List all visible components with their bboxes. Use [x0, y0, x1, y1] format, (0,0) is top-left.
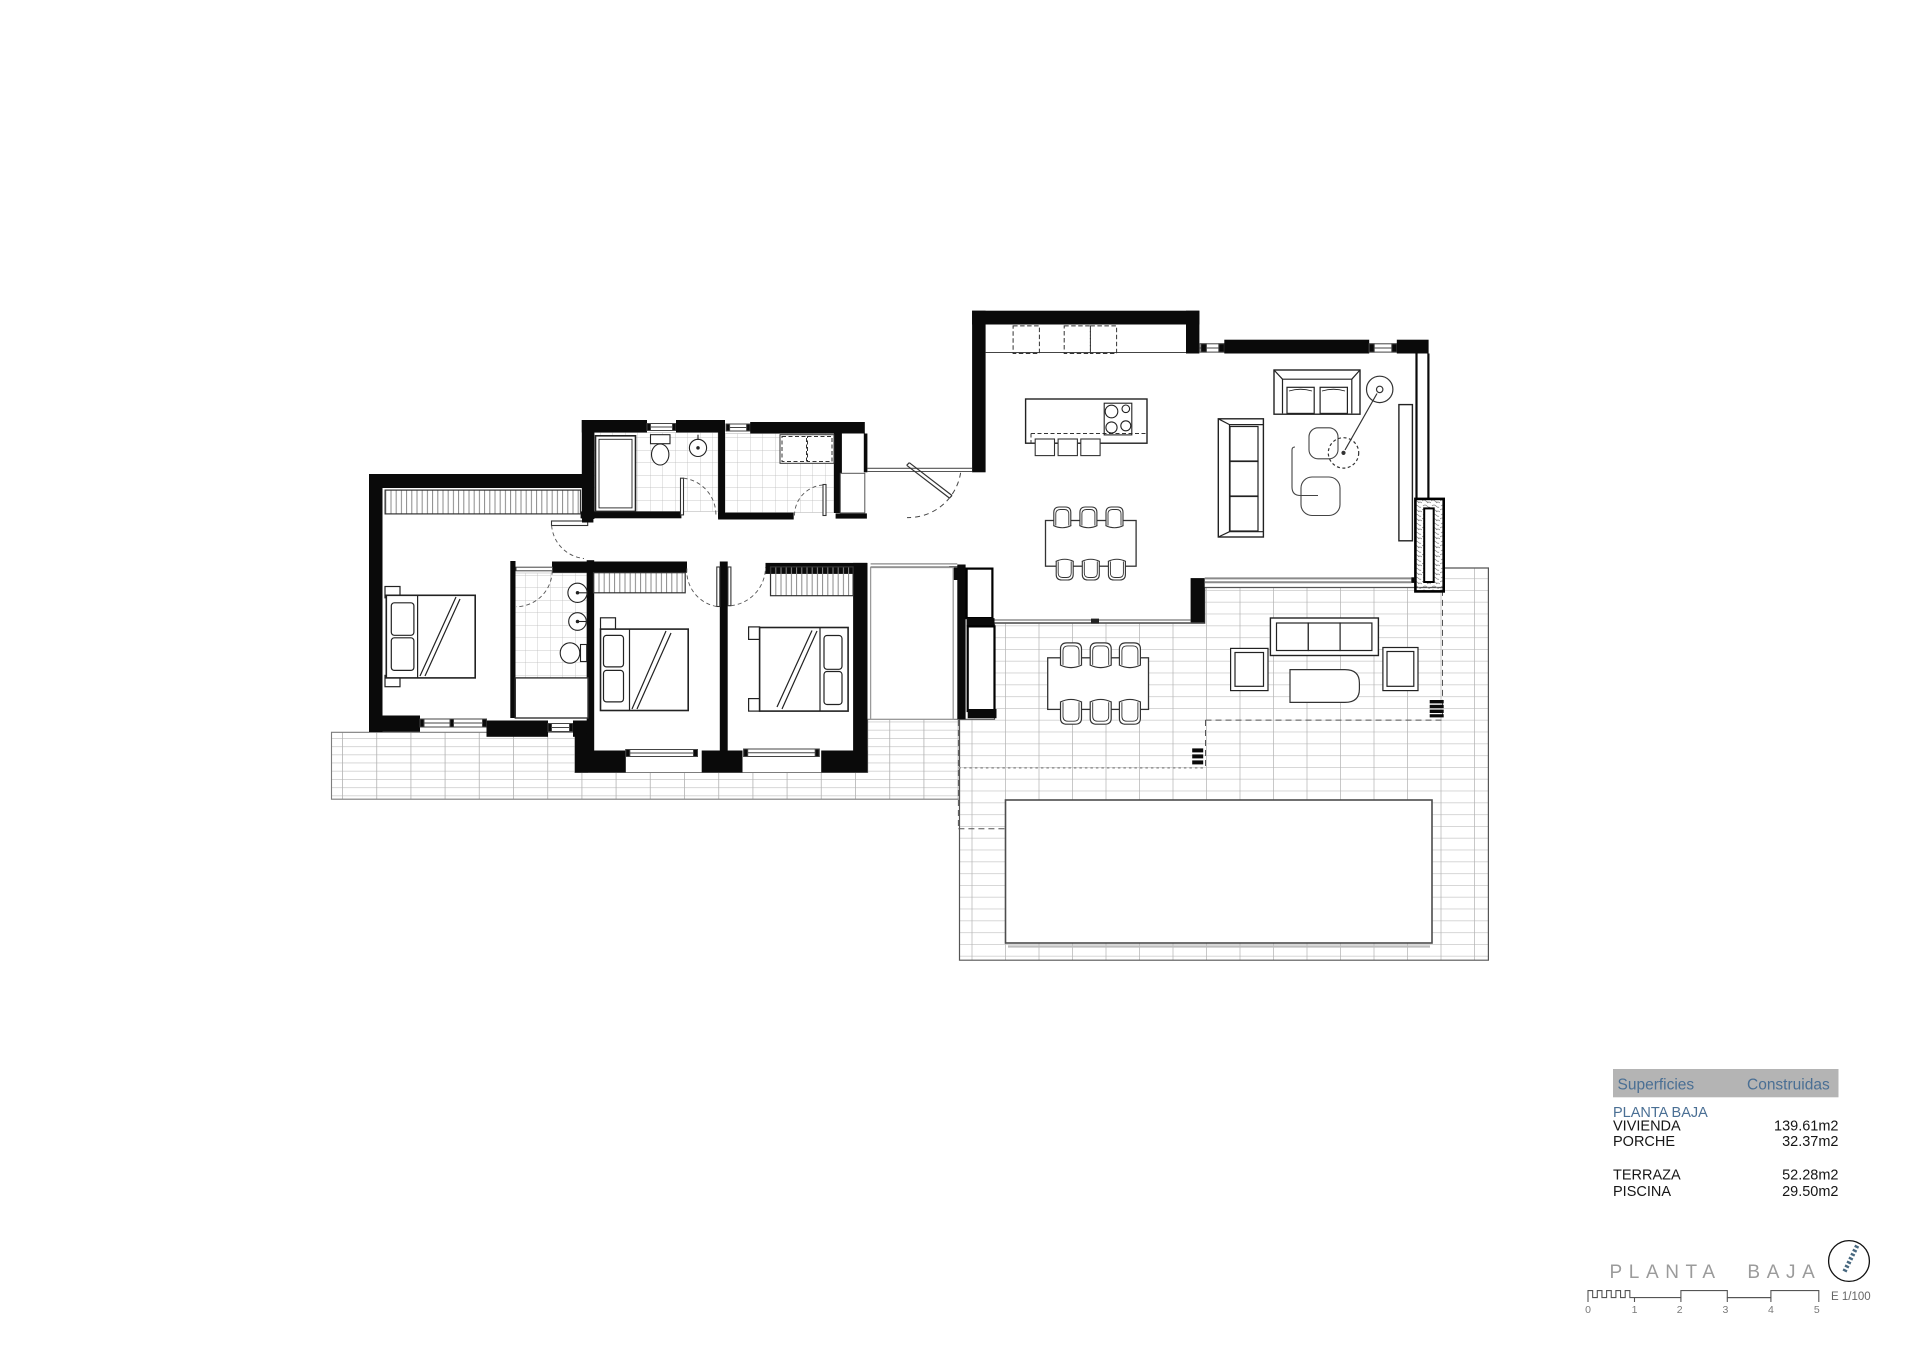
svg-text:5: 5	[1814, 1304, 1820, 1316]
svg-text:32.37m2: 32.37m2	[1782, 1134, 1838, 1150]
svg-text:4: 4	[1768, 1304, 1774, 1316]
svg-text:3: 3	[1722, 1304, 1728, 1316]
svg-text:PISCINA: PISCINA	[1613, 1184, 1671, 1200]
svg-text:Construidas: Construidas	[1747, 1077, 1830, 1094]
svg-text:Superficies: Superficies	[1618, 1077, 1695, 1094]
svg-text:2: 2	[1677, 1304, 1683, 1316]
svg-text:0: 0	[1585, 1304, 1591, 1316]
svg-text:PORCHE: PORCHE	[1613, 1134, 1675, 1150]
svg-text:VIVIENDA: VIVIENDA	[1613, 1119, 1681, 1135]
svg-text:TERRAZA: TERRAZA	[1613, 1168, 1681, 1184]
svg-text:PLANTA BAJA: PLANTA BAJA	[1610, 1262, 1822, 1283]
svg-text:139.61m2: 139.61m2	[1774, 1119, 1839, 1135]
svg-text:1: 1	[1632, 1304, 1638, 1316]
svg-text:52.28m2: 52.28m2	[1782, 1168, 1838, 1184]
svg-text:29.50m2: 29.50m2	[1782, 1184, 1838, 1200]
svg-text:E 1/100: E 1/100	[1831, 1291, 1871, 1303]
